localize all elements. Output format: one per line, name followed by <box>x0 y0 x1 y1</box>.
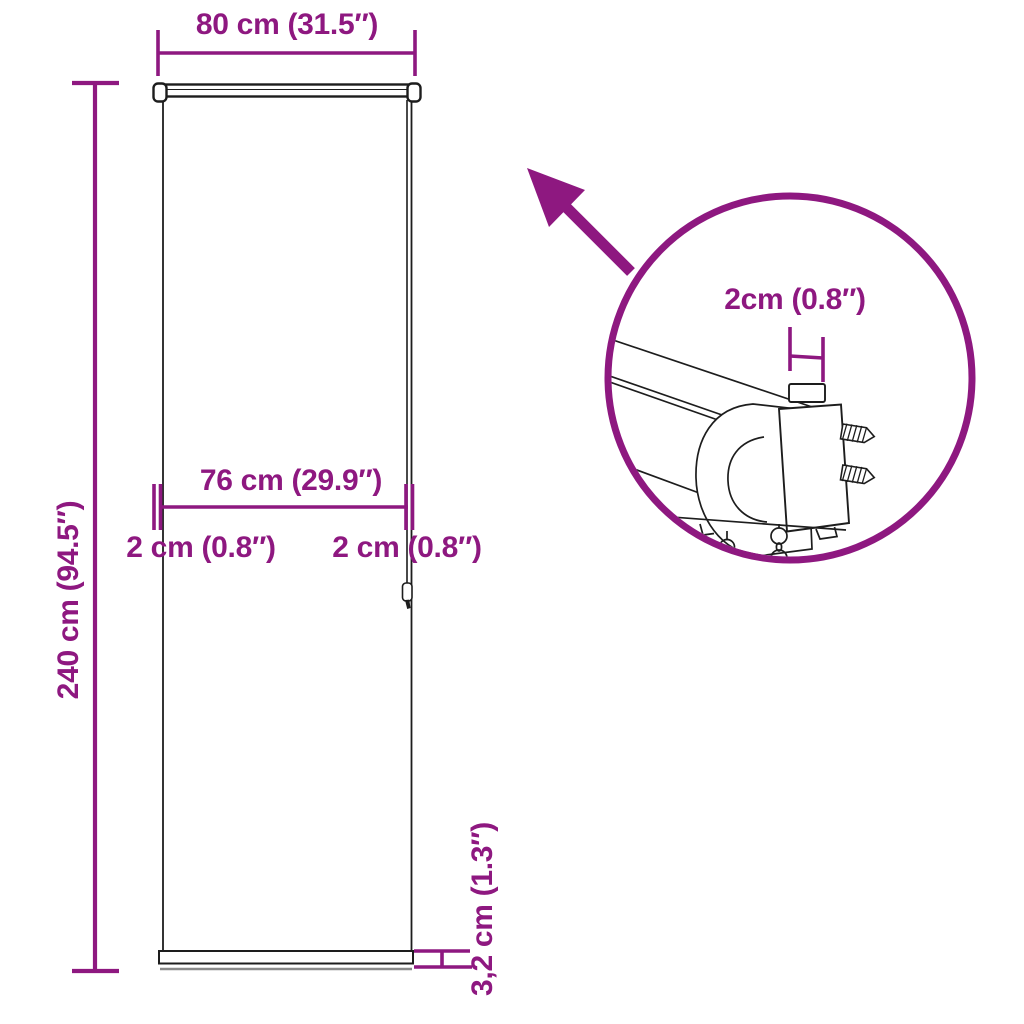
total-width-label: 80 cm (31.5″) <box>137 7 437 43</box>
roller-left-end-cap <box>154 84 167 102</box>
left-margin-label: 2 cm (0.8″) <box>101 530 301 566</box>
bracket-plate <box>779 405 849 532</box>
bottom-slat <box>159 951 413 964</box>
bracket-depth-label: 2cm (0.8″) <box>695 282 895 318</box>
detail-circle-callout <box>600 196 972 588</box>
zoom-arrow-icon <box>527 168 631 272</box>
right-margin-label: 2 cm (0.8″) <box>307 530 507 566</box>
cord-tassel <box>403 583 413 609</box>
dimension-slat-thickness <box>414 951 472 967</box>
product-dimension-diagram: 80 cm (31.5″) 240 cm (94.5″) 76 cm (29.9… <box>0 0 1024 1024</box>
roller-blind-front-view <box>154 84 421 970</box>
mounting-tab <box>789 384 825 402</box>
total-height-label: 240 cm (94.5″) <box>51 480 87 720</box>
diagram-line-art <box>0 0 1024 1024</box>
roller-right-end-cap <box>408 84 421 102</box>
fabric-width-label: 76 cm (29.9″) <box>141 463 441 499</box>
slat-thickness-label: 3,2 cm (1.3″) <box>465 789 501 1024</box>
roller-tube <box>158 85 417 97</box>
